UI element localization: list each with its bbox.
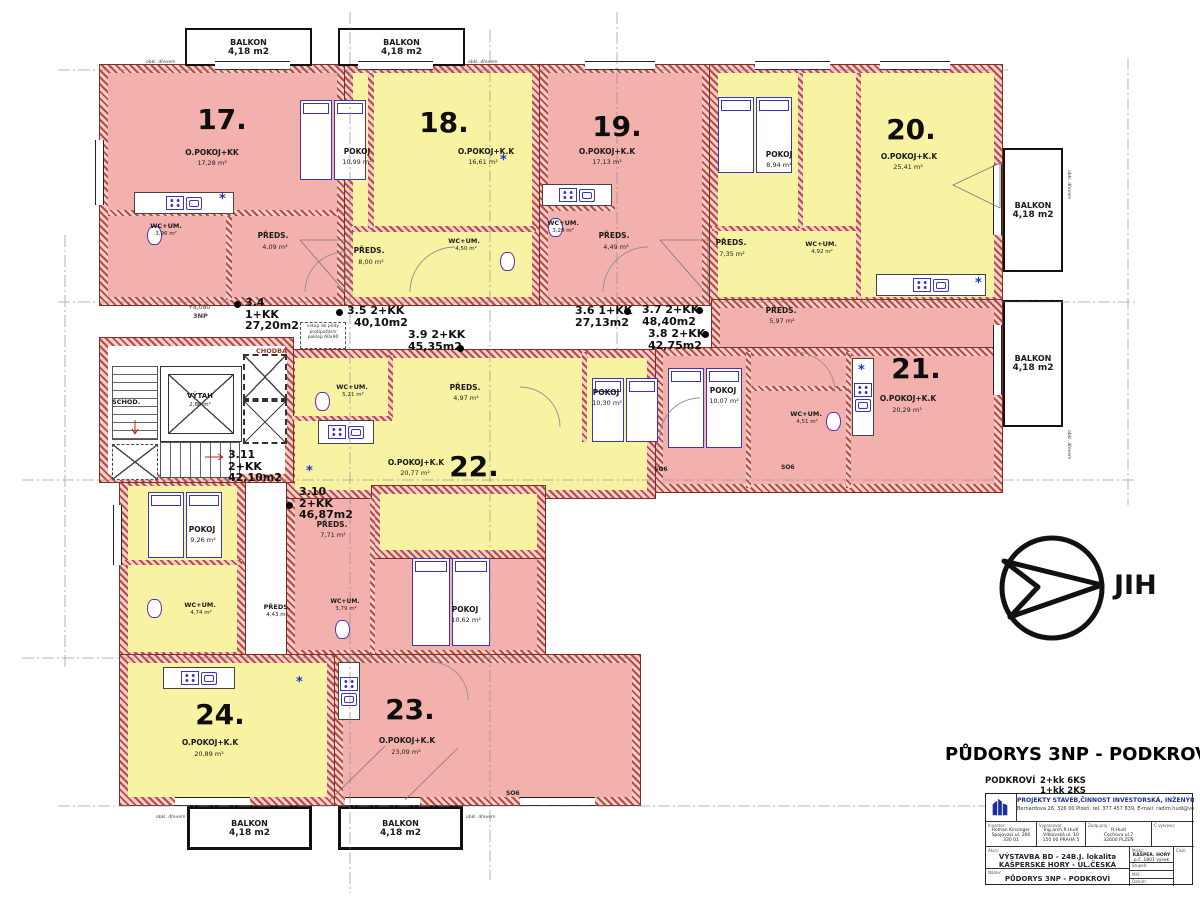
room-area: 4,09 m² (262, 243, 287, 251)
stove-icon (559, 188, 577, 202)
wall (226, 216, 232, 300)
room-area: 20,29 m² (892, 406, 922, 414)
room-label: PŘEDS. (599, 231, 630, 240)
so6-label: SO6 (781, 464, 795, 471)
kitchen-icon (876, 274, 986, 296)
drawing-name-cell: Název: PŮDORYS 3NP - PODKROVÍ (986, 868, 1129, 886)
room-label: O.POKOJ+KK (185, 148, 238, 157)
drawing-name: PŮDORYS 3NP - PODKROVÍ (986, 875, 1129, 883)
summary-floor: PODKROVÍ (985, 776, 1035, 786)
part-cell: Část: (1173, 846, 1194, 886)
scale-cell: Měř.: 1 : 50 (1129, 870, 1173, 878)
unit-label-3-6: 3.6 1+KK 27,13m2 (575, 305, 632, 328)
window (880, 61, 950, 70)
wall (370, 498, 375, 654)
room-area: 4,74 m² (190, 610, 212, 616)
note-line: poklop 60x90 (302, 335, 344, 341)
room-area: 23,09 m² (391, 748, 421, 756)
level-mark: +8,080 (188, 304, 210, 311)
cell-line: 32600 PLZEŇ (1086, 838, 1151, 843)
cell-label: Stupeň: (1130, 863, 1173, 868)
balcony-right-1: BALKON 4,18 m2 (1003, 148, 1063, 272)
room-area: 5,21 m² (342, 392, 364, 398)
room-label: POKOJ (710, 386, 737, 395)
room-label: POKOJ (593, 388, 620, 397)
apartment-22-lower-box (372, 486, 545, 558)
bed-icon (412, 558, 450, 646)
window (345, 797, 420, 806)
room-area: 8,94 m² (766, 161, 791, 169)
drawing-title: PŮDORYS 3NP - PODKROVÍ (945, 744, 1195, 765)
elevator-area: 2,80 m² (189, 402, 211, 408)
cell-line: 330 01 (986, 838, 1036, 843)
radiator-icon: * (219, 196, 226, 204)
radiator-icon: * (306, 468, 313, 476)
balcony-bottom-2: BALKON 4,18 m2 (338, 806, 463, 850)
toilet-icon (826, 412, 841, 431)
room-label: WC+UM. (448, 237, 480, 245)
unit-label-3-10: 3.10 2+KK 46,87m2 (299, 486, 353, 521)
room-label: POKOJ (452, 605, 479, 614)
toilet-icon (500, 252, 515, 271)
wall (712, 226, 860, 231)
cell-label: Datum: (1130, 879, 1173, 884)
room-area: 9,26 m² (190, 536, 215, 544)
stove-icon (913, 278, 931, 292)
stove-icon (328, 425, 346, 439)
unit-label-3-8: 3.8 2+KK 42,75m2 (648, 328, 705, 351)
room-label: WC+UM. (184, 601, 216, 609)
room-area: 4,49 m² (603, 243, 628, 251)
room-label: PŘEDS. (354, 246, 385, 255)
cladding-note: obkl. dřevem (146, 60, 176, 65)
room-label: PŘEDS. (450, 383, 481, 392)
unit-area: 48,40m2 (642, 316, 699, 328)
apartment-23-box (335, 655, 640, 805)
unit-marker-dot (336, 309, 343, 316)
stove-icon (181, 671, 199, 685)
so6-label: SO6 (654, 466, 668, 473)
apartment-number-19: 19. (592, 110, 642, 143)
author-cell: Vypracoval: Ing.arch.R.Hudl Vítkovská ul… (1036, 821, 1085, 846)
sink-icon (341, 693, 357, 706)
balcony-label: BALKON (1015, 201, 1052, 210)
apartment-number-24: 24. (195, 698, 245, 731)
room-area: 3,96 m² (155, 231, 177, 237)
wall (798, 73, 803, 228)
room-label: POKOJ (189, 525, 216, 534)
toilet-icon (315, 392, 330, 411)
elevator-label: VÝTAH (187, 392, 213, 400)
room-label: O.POKOJ+K.K (458, 147, 514, 156)
unit-no: 3.4 (245, 297, 299, 309)
unit-area: 42,75m2 (648, 340, 705, 352)
room-area: 10,99 m² (342, 158, 372, 166)
room-area: 16,61 m² (468, 158, 498, 166)
kitchen-icon (318, 420, 374, 444)
bed-icon (626, 378, 658, 442)
room-label: PŘEDS. (317, 520, 348, 529)
sink-icon (186, 197, 202, 210)
room-area: 4,43 m² (266, 612, 288, 618)
sink-icon (201, 672, 217, 685)
unit-no: 3.11 (228, 449, 282, 461)
project-line-2: KAŠPERSKÉ HORY - UL.ČESKÁ (986, 861, 1129, 868)
room-label: WC+UM. (150, 222, 182, 230)
window (113, 505, 122, 565)
bed-icon (718, 97, 754, 173)
room-area: 10,62 m² (451, 616, 481, 624)
stage-cell: Stupeň: (1129, 862, 1173, 870)
sink-icon (933, 279, 949, 292)
room-area: 25,41 m² (893, 163, 923, 171)
sink-icon (855, 399, 871, 412)
apartment-number-17: 17. (197, 103, 247, 136)
balcony-area: 4,18 m2 (381, 47, 422, 57)
room-area: 4,50 m² (455, 246, 477, 252)
room-label: WC+UM. (547, 219, 579, 227)
note-line: vstup do půdy (302, 324, 344, 330)
unit-marker-dot (457, 345, 464, 352)
room-area: 3,28 m² (552, 228, 574, 234)
apartment-number-18: 18. (419, 106, 469, 139)
company-logo-icon (989, 796, 1011, 818)
shaft-icon (243, 354, 287, 400)
investor-cell: Investor: Roman Kinzinger Spojovací ul. … (986, 821, 1036, 846)
room-label: O.POKOJ+K.K (379, 736, 435, 745)
stove-icon (166, 196, 184, 210)
cell-label: Měř.: (1130, 871, 1142, 877)
room-label: O.POKOJ+K.K (388, 458, 444, 467)
wall (352, 226, 536, 232)
room-area: 17,13 m² (592, 158, 622, 166)
stove-icon (854, 383, 872, 397)
drawing-number-cell: Č.výkresu: (1151, 821, 1194, 846)
compass-icon (1002, 538, 1102, 638)
project-cell: Akce: VÝSTAVBA BD - 24B.J. lokalita KAŠP… (986, 846, 1129, 868)
room-label: PŘEDS. (716, 238, 747, 247)
shaft-icon (243, 400, 287, 444)
unit-label-3-5: 3.5 2+KK 40,10m2 (347, 305, 408, 328)
apartment-number-22: 22. (449, 450, 499, 483)
room-area: 3,79 m² (335, 606, 357, 612)
room-area: 4,92 m² (811, 249, 833, 255)
cell-label: Část: (1174, 847, 1194, 853)
cladding-note: obkl. dřevem (1066, 170, 1071, 200)
window (520, 797, 595, 806)
so6-label: SO6 (506, 790, 520, 797)
wall (122, 560, 242, 565)
cladding-note: obkl. dřevem (468, 60, 498, 65)
unit-area: 27,13m2 (575, 317, 632, 329)
sink-icon (579, 189, 595, 202)
balcony-area: 4,18 m2 (228, 47, 269, 57)
date-cell: Datum: (1129, 878, 1173, 886)
stairs-label: SCHOD. (112, 398, 140, 406)
company-cell: PROJEKTY STAVEB,ČINNOST INVESTORSKÁ, INŽ… (1016, 794, 1194, 821)
room-label: PŘEDS. (264, 603, 291, 611)
toilet-icon (335, 620, 350, 639)
wall (846, 352, 851, 488)
radiator-icon: * (500, 157, 507, 165)
project-line-1: VÝSTAVBA BD - 24B.J. lokalita (986, 853, 1129, 861)
window (993, 325, 1002, 395)
bed-icon (452, 558, 490, 646)
radiator-icon: * (296, 679, 303, 687)
room-label: O.POKOJ+K.K (182, 738, 238, 747)
apartment-number-23: 23. (385, 693, 435, 726)
unit-area: 42,10m2 (228, 472, 282, 484)
balcony-bottom-1: BALKON 4,18 m2 (187, 806, 312, 850)
bed-icon (668, 368, 704, 448)
kitchen-icon (163, 667, 235, 689)
room-label: POKOJ (766, 150, 793, 159)
unit-label-3-11: 3.11 2+KK 42,10m2 (228, 449, 282, 484)
room-label: WC+UM. (805, 240, 837, 248)
unit-marker-dot (696, 307, 703, 314)
cell-line: 150 00 PRAHA 5 (1037, 838, 1085, 843)
kitchen-icon (338, 662, 360, 720)
room-area: 4,97 m² (453, 394, 478, 402)
balcony-area: 4,18 m2 (1013, 210, 1054, 220)
room-area: 10,07 m² (709, 397, 739, 405)
compass-label: JIH (1114, 570, 1157, 601)
summary-line-1: 2+kk 6KS (1040, 776, 1086, 786)
room-label: PŘEDS. (766, 306, 797, 315)
responsible-cell: Zodp.proj.: R.Hudl Čechova ul.7 32600 PL… (1085, 821, 1151, 846)
room-area: 5,97 m² (769, 317, 794, 325)
room-area: 8,00 m² (358, 258, 383, 266)
room-area: 4,51 m² (796, 419, 818, 425)
balcony-area: 4,18 m2 (380, 828, 421, 838)
window (175, 797, 250, 806)
wall (746, 352, 751, 488)
balcony-label: BALKON (231, 819, 268, 828)
apartment-number-21: 21. (891, 352, 941, 385)
cladding-note: obkl. dřevem (466, 815, 496, 820)
place-cell: Místo: KAŠPER. HORY p.č. 1801 výsek (1129, 846, 1173, 862)
unit-area: 40,10m2 (347, 317, 408, 329)
bed-icon (706, 368, 742, 448)
balcony-label: BALKON (383, 38, 420, 47)
room-label: WC+UM. (336, 383, 368, 391)
window (755, 61, 830, 70)
corridor-label: CHODBA (256, 347, 287, 355)
kitchen-icon (542, 184, 612, 206)
room-label: WC+UM. (330, 598, 359, 605)
unit-area: 46,87m2 (299, 509, 353, 521)
unit-marker-dot (286, 502, 293, 509)
wall (582, 352, 587, 442)
stove-icon (340, 677, 358, 691)
room-label: POKOJ (344, 147, 371, 156)
cladding-note: obkl. dřevem (1066, 430, 1071, 460)
cell-label: Č.výkresu: (1152, 822, 1194, 828)
unit-label-3-4: 3.4 1+KK 27,20m2 (245, 297, 299, 332)
attic-access-note: vstup do půdy protipožární poklop 60x90 (300, 322, 346, 349)
cladding-note: obkl. dřevem (156, 815, 186, 820)
sink-icon (348, 426, 364, 439)
balcony-area: 4,18 m2 (229, 828, 270, 838)
shaft-icon (112, 444, 158, 480)
unit-no: 3.10 (299, 486, 353, 498)
wall (856, 73, 861, 299)
balcony-right-2: BALKON 4,18 m2 (1003, 300, 1063, 427)
wall (388, 355, 393, 420)
window (358, 61, 433, 70)
room-area: 7,35 m² (719, 250, 744, 258)
bed-icon (300, 100, 332, 180)
room-label: O.POKOJ+K.K (579, 147, 635, 156)
balcony-label: BALKON (1015, 354, 1052, 363)
unit-area: 27,20m2 (245, 320, 299, 332)
balcony-label: BALKON (230, 38, 267, 47)
room-label: O.POKOJ+K.K (880, 394, 936, 403)
bed-icon (334, 100, 366, 180)
room-area: 20,77 m² (400, 469, 430, 477)
room-label: WC+UM. (790, 410, 822, 418)
radiator-icon: * (975, 280, 982, 288)
balcony-area: 4,18 m2 (1013, 363, 1054, 373)
unit-marker-dot (624, 308, 631, 315)
unit-marker-dot (234, 301, 241, 308)
logo-cell (986, 794, 1016, 821)
window (95, 140, 104, 205)
room-area: 20,89 m² (194, 750, 224, 758)
wall (748, 386, 848, 391)
balcony-label: BALKON (382, 819, 419, 828)
bed-icon (148, 492, 184, 558)
unit-label-3-7: 3.7 2+KK 48,40m2 (642, 304, 699, 327)
radiator-icon: * (858, 367, 865, 375)
title-block: PROJEKTY STAVEB,ČINNOST INVESTORSKÁ, INŽ… (985, 793, 1193, 885)
company-address: Bernardova 26, 326 00 Plzeň, tel. 377 45… (1017, 806, 1194, 812)
apartment-number-20: 20. (886, 113, 936, 146)
window (993, 165, 1002, 235)
toilet-icon (147, 599, 162, 618)
unit-marker-dot (702, 331, 709, 338)
room-area: 10,30 m² (592, 399, 622, 407)
room-label: PŘEDS. (258, 231, 289, 240)
company-name: PROJEKTY STAVEB,ČINNOST INVESTORSKÁ, INŽ… (1017, 797, 1194, 804)
room-area: 7,71 m² (320, 531, 345, 539)
window (585, 61, 655, 70)
room-area: 17,28 m² (197, 159, 227, 167)
room-label: O.POKOJ+K.K (881, 152, 937, 161)
window (215, 61, 290, 70)
level-floor: 3NP (193, 312, 208, 320)
wall (545, 206, 615, 211)
floor-plan: BALKON 4,18 m2 BALKON 4,18 m2 BALKON 4,1… (0, 0, 1200, 910)
